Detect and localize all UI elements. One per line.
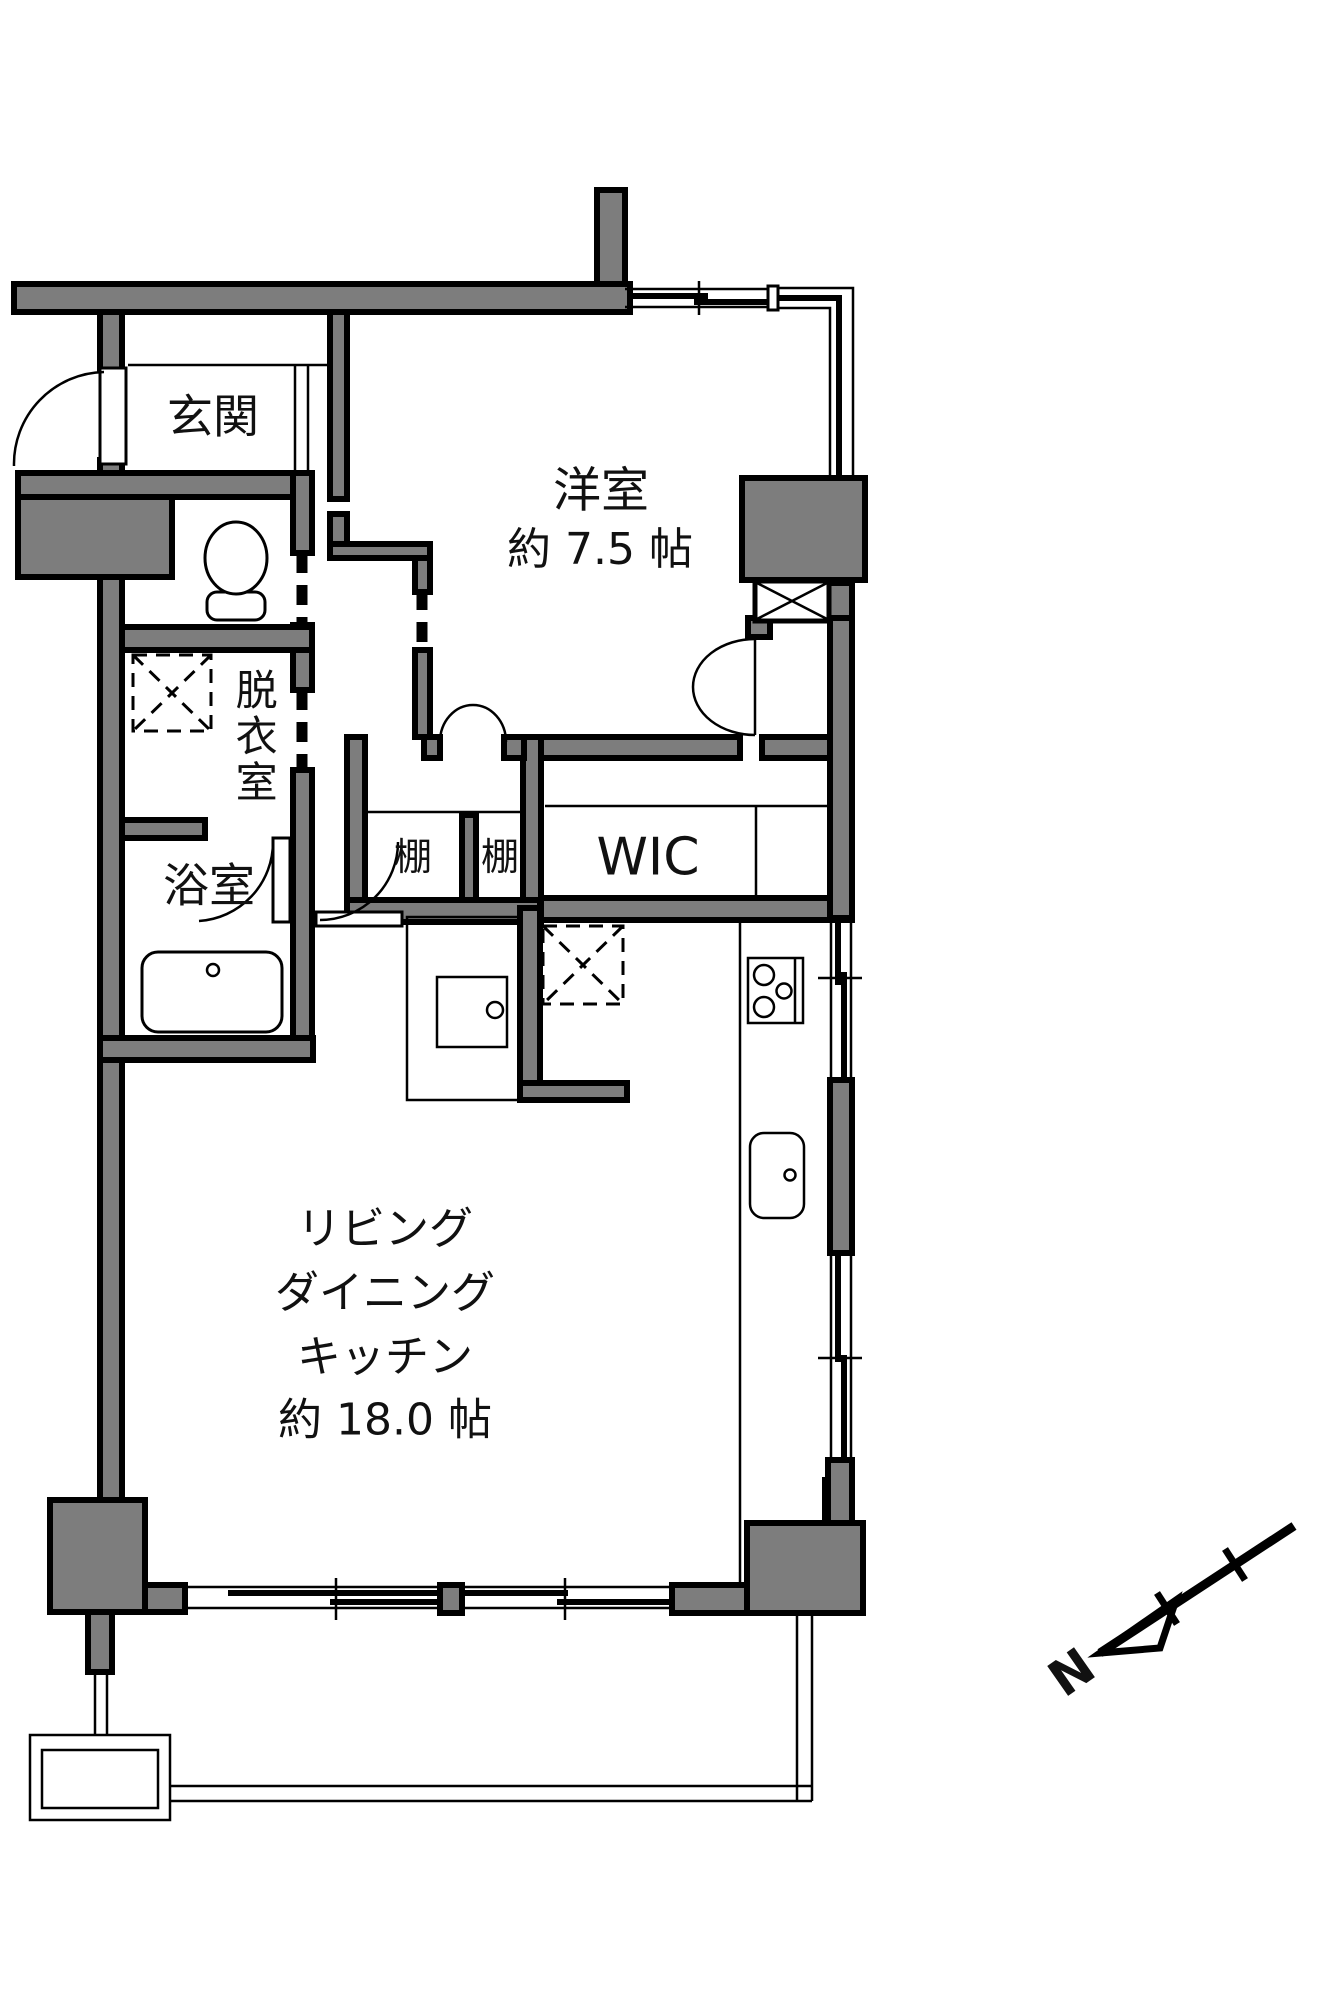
- wall-east-upper: [830, 618, 852, 918]
- wic-door-arc: [693, 687, 755, 735]
- compass: [1100, 1526, 1294, 1653]
- wall-b-upper: [415, 558, 430, 592]
- balcony-rail-inner: [778, 308, 830, 478]
- closet-double-doors: [440, 705, 506, 742]
- label-shelf-left: 棚: [394, 837, 432, 879]
- south-window-band: [185, 1578, 672, 1620]
- bath-door-leaf: [273, 838, 290, 922]
- wall-toilet-south: [122, 627, 312, 650]
- wall-vanity-vertical: [520, 908, 540, 1083]
- label-wic: WIC: [596, 829, 699, 886]
- entrance-door-leaf: [100, 368, 126, 464]
- wall-w1-stub-west: [424, 737, 440, 758]
- label-ldk: リビング ダイニング キッチン 約 18.0 帖: [275, 1197, 495, 1452]
- wall-bedroom-south: [541, 737, 740, 758]
- wall-storage-east: [523, 737, 541, 922]
- east-window-upper: [818, 920, 862, 1080]
- pillar-bottom-left: [50, 1500, 145, 1612]
- label-ldk-line1: リビング: [275, 1197, 495, 1261]
- wall-a-upper: [330, 312, 347, 499]
- wall-shelf-divider: [462, 815, 476, 905]
- wall-top-pole: [597, 190, 625, 290]
- label-western-room: 洋室: [553, 465, 649, 518]
- corner-balcony-top-right: [778, 288, 853, 478]
- wall-bath-south: [100, 1038, 313, 1060]
- toilet-base: [207, 592, 265, 620]
- toilet-fixture: [205, 522, 267, 620]
- pillar-right-top: [742, 478, 865, 580]
- wall-east-kitchen: [830, 1080, 852, 1253]
- label-ldk-line2: ダイニング: [275, 1261, 495, 1325]
- wall-genkan-south: [18, 473, 312, 497]
- east-window-lower: [818, 1253, 862, 1460]
- compass-arrowhead: [1100, 1600, 1176, 1653]
- closet-door-arc: [440, 705, 473, 742]
- wic-double-doors: [693, 639, 755, 735]
- entrance-door-arc: [14, 372, 104, 466]
- vanity-sink: [437, 977, 507, 1047]
- wall-top-band: [14, 284, 630, 312]
- ps-shaft: [755, 581, 829, 621]
- fridge-space: [543, 926, 623, 1004]
- washer-space: [133, 655, 211, 731]
- sink-faucet: [785, 1170, 796, 1181]
- label-dressing-room: 脱衣室: [230, 668, 276, 806]
- window-end-frame: [768, 286, 778, 310]
- stove-burner: [754, 997, 774, 1017]
- balcony-wall-stub: [88, 1612, 112, 1672]
- wall-east-stub: [828, 1460, 852, 1523]
- kitchen-sink: [750, 1133, 804, 1218]
- wall-storage-west: [347, 737, 365, 922]
- wall-washroom-east-1: [293, 473, 312, 553]
- window-mullion: [440, 1585, 462, 1613]
- wall-bath-north: [122, 820, 205, 838]
- bathtub: [142, 952, 282, 1032]
- wic-door-arc: [693, 639, 755, 687]
- label-entrance: 玄関: [167, 392, 259, 443]
- balcony-hatch-inner: [42, 1750, 158, 1808]
- stove-burner: [777, 984, 792, 999]
- label-ldk-line4: 約 18.0 帖: [275, 1389, 495, 1453]
- north-window: [625, 281, 778, 315]
- label-bathroom: 浴室: [163, 861, 255, 912]
- wall-bedroom-south-east: [762, 737, 830, 758]
- vanity-faucet: [487, 1002, 503, 1018]
- wall-washroom-east-3: [293, 770, 312, 1060]
- floorplan: 玄関 洋室 約 7.5 帖 脱衣室 浴室 棚 棚 WIC リビング ダイニング …: [0, 0, 1317, 2000]
- wall-b-lower: [415, 650, 430, 737]
- label-shelf-right: 棚: [481, 837, 519, 879]
- wall-vanity-horizontal: [520, 1083, 627, 1100]
- stove: [748, 958, 803, 1023]
- wall-left-stub-upper: [100, 312, 122, 370]
- entrance-door: [14, 368, 126, 466]
- label-western-room-size: 約 7.5 帖: [507, 526, 693, 574]
- pillar-br-wing: [672, 1585, 747, 1613]
- floorplan-drawing: [0, 0, 1317, 2000]
- stove-burner: [754, 965, 774, 985]
- vanity-counter: [407, 917, 520, 1100]
- pillar-bl-wing: [145, 1585, 185, 1612]
- balcony: [30, 1613, 812, 1820]
- wall-wic-south: [541, 898, 852, 920]
- toilet-bowl: [205, 522, 267, 594]
- label-ldk-line3: キッチン: [275, 1325, 495, 1389]
